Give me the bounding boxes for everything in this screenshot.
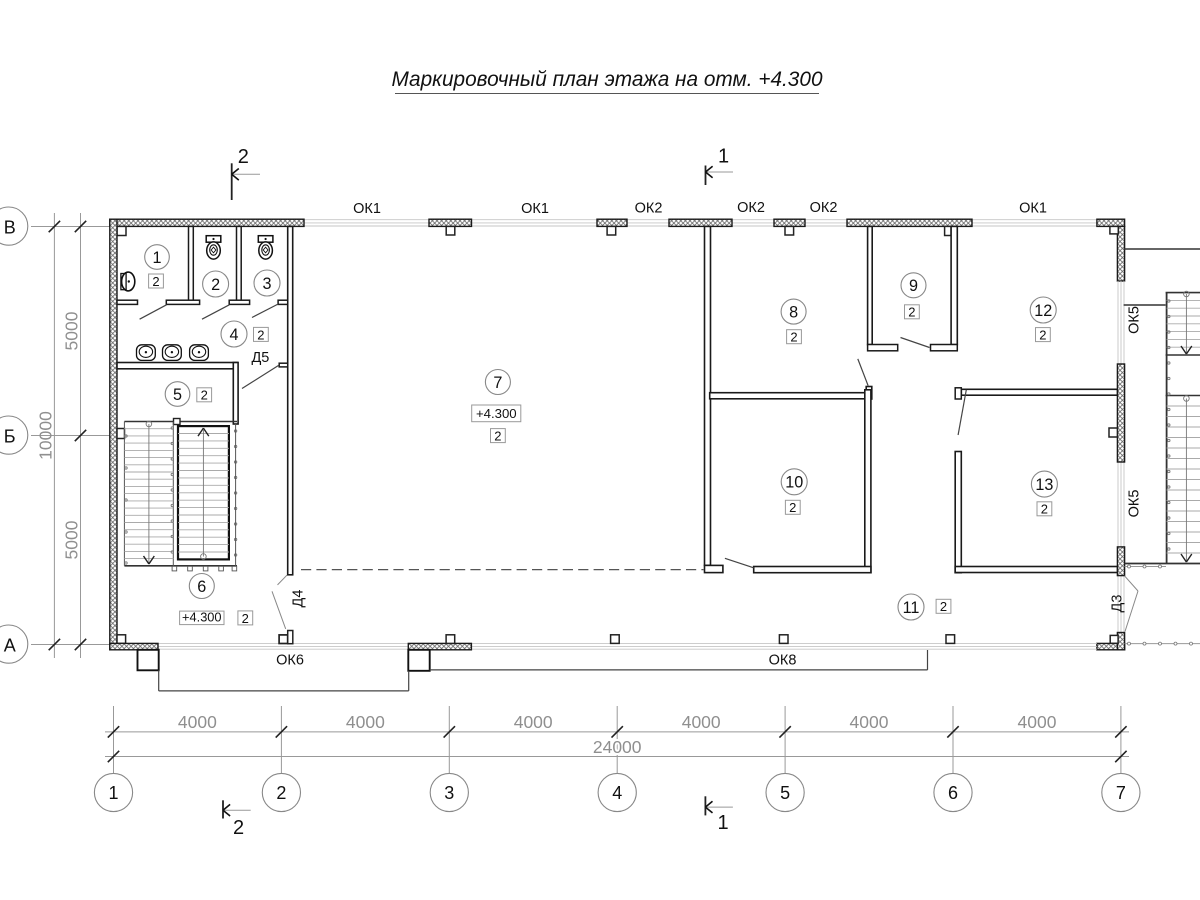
svg-text:10000: 10000 — [36, 411, 56, 460]
svg-text:3: 3 — [262, 275, 271, 293]
svg-text:9: 9 — [909, 277, 918, 295]
svg-text:7: 7 — [493, 374, 502, 392]
svg-text:11: 11 — [903, 599, 920, 617]
svg-text:2: 2 — [908, 305, 915, 320]
svg-text:Д5: Д5 — [251, 350, 269, 366]
svg-text:1: 1 — [718, 146, 729, 168]
svg-text:Д3: Д3 — [1110, 595, 1126, 613]
svg-text:1: 1 — [152, 249, 161, 267]
svg-text:4000: 4000 — [178, 712, 217, 732]
svg-text:А: А — [4, 635, 16, 655]
svg-text:2: 2 — [257, 327, 264, 342]
svg-text:ОК8: ОК8 — [769, 653, 797, 669]
svg-text:2: 2 — [276, 783, 286, 803]
svg-text:12: 12 — [1034, 302, 1052, 320]
svg-text:ОК1: ОК1 — [521, 201, 549, 217]
svg-text:Б: Б — [4, 426, 16, 446]
svg-text:2: 2 — [790, 330, 797, 345]
svg-text:5000: 5000 — [62, 520, 82, 559]
svg-text:4000: 4000 — [850, 712, 889, 732]
svg-text:2: 2 — [152, 274, 159, 289]
svg-text:3: 3 — [444, 783, 454, 803]
svg-text:В: В — [4, 217, 16, 237]
svg-text:4000: 4000 — [346, 712, 385, 732]
svg-text:2: 2 — [940, 599, 947, 614]
svg-text:2: 2 — [242, 611, 249, 626]
svg-text:6: 6 — [197, 578, 206, 596]
svg-text:ОК5: ОК5 — [1127, 306, 1143, 334]
svg-text:4000: 4000 — [1018, 712, 1057, 732]
svg-text:5: 5 — [780, 783, 790, 803]
svg-text:5: 5 — [173, 386, 182, 404]
svg-text:ОК2: ОК2 — [810, 200, 838, 216]
svg-text:6: 6 — [948, 783, 958, 803]
svg-text:2: 2 — [1041, 502, 1048, 517]
svg-text:2: 2 — [211, 276, 220, 294]
svg-text:+4.300: +4.300 — [476, 406, 517, 421]
svg-text:1: 1 — [717, 812, 728, 834]
svg-text:+4.300: +4.300 — [182, 610, 222, 625]
svg-text:2: 2 — [1039, 328, 1046, 343]
svg-text:10: 10 — [785, 474, 803, 492]
svg-text:13: 13 — [1035, 476, 1053, 494]
svg-text:Д4: Д4 — [291, 590, 307, 608]
svg-text:8: 8 — [789, 303, 798, 321]
svg-text:ОК1: ОК1 — [353, 201, 381, 217]
svg-text:2: 2 — [233, 817, 244, 839]
svg-text:ОК2: ОК2 — [737, 200, 765, 216]
svg-text:2: 2 — [789, 500, 796, 515]
svg-text:4000: 4000 — [682, 712, 721, 732]
svg-text:2: 2 — [494, 429, 501, 444]
svg-text:4: 4 — [229, 326, 238, 344]
svg-text:4: 4 — [612, 783, 622, 803]
svg-text:ОК1: ОК1 — [1019, 201, 1047, 217]
svg-text:24000: 24000 — [593, 737, 642, 757]
svg-text:ОК2: ОК2 — [635, 201, 663, 217]
svg-text:5000: 5000 — [62, 311, 82, 350]
svg-text:Маркировочный план этажа на от: Маркировочный план этажа на отм. +4.300 — [391, 68, 822, 91]
svg-text:ОК6: ОК6 — [276, 653, 304, 669]
svg-text:1: 1 — [108, 783, 118, 803]
svg-text:7: 7 — [1116, 783, 1126, 803]
svg-text:2: 2 — [201, 388, 208, 403]
svg-text:4000: 4000 — [514, 712, 553, 732]
svg-text:2: 2 — [238, 146, 249, 168]
svg-text:ОК5: ОК5 — [1127, 490, 1143, 518]
